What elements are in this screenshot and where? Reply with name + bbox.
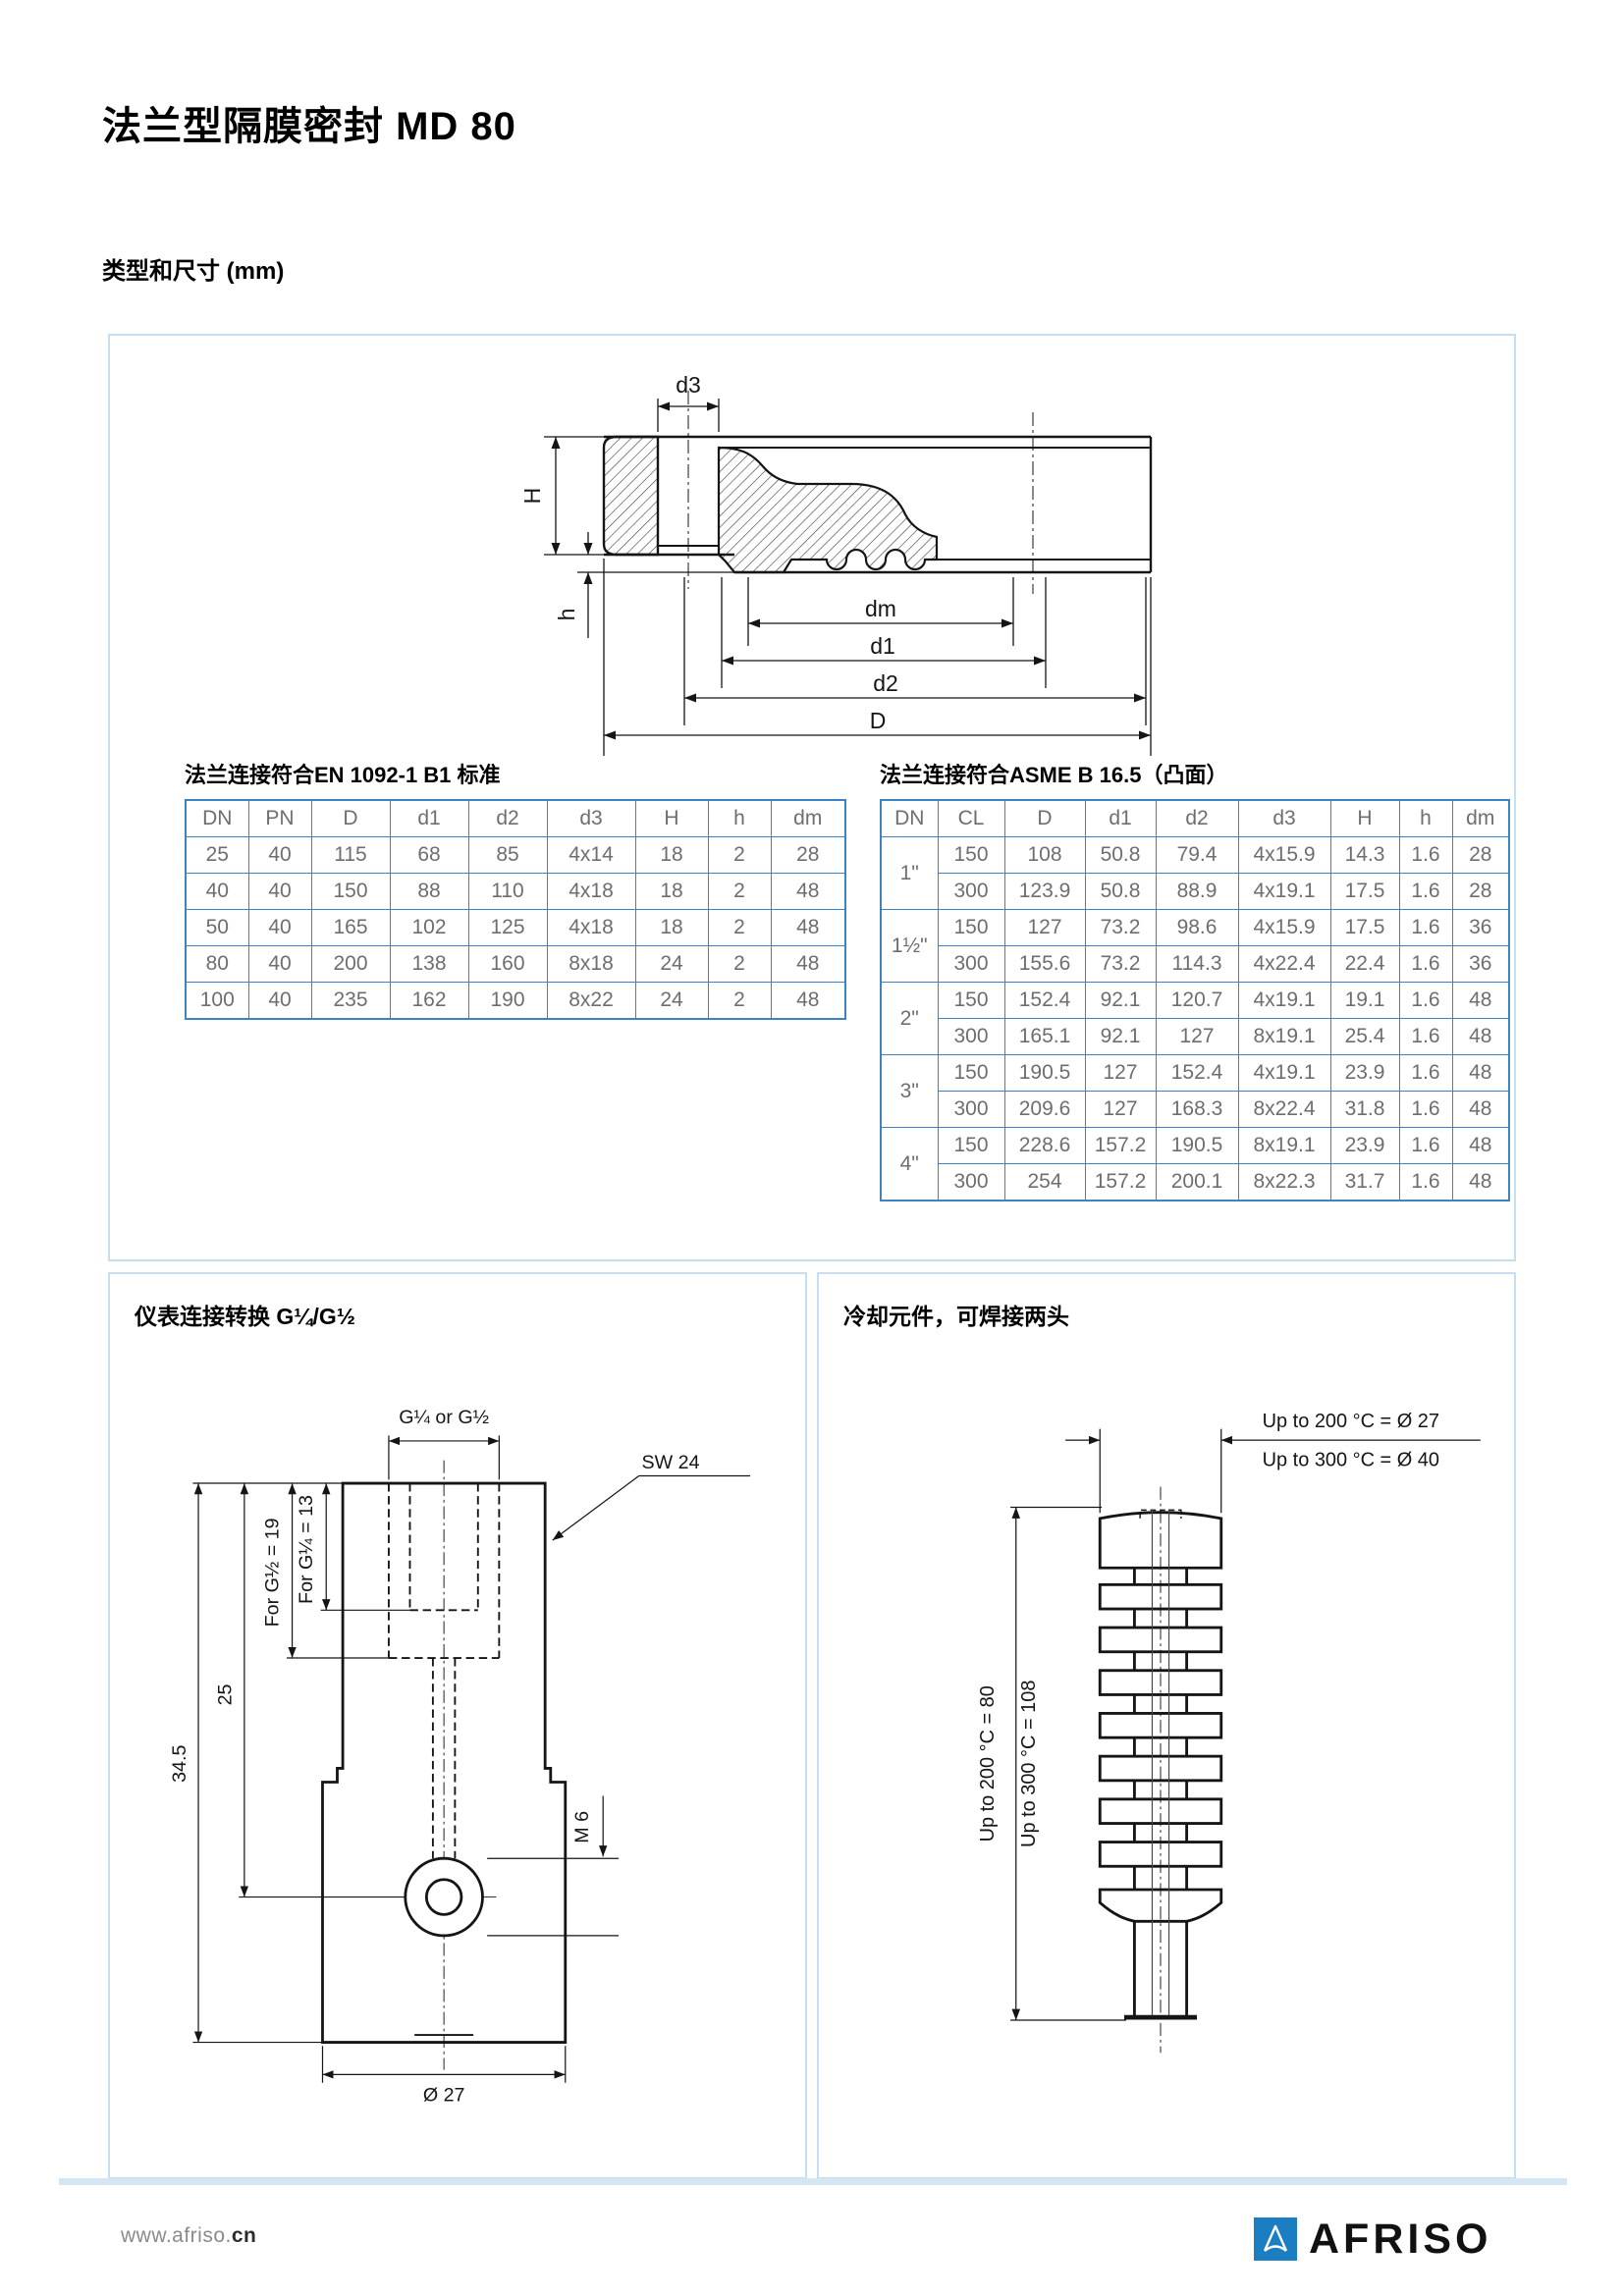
dim-label-d3: d3 bbox=[676, 372, 701, 398]
dim-label-to-hole: 25 bbox=[215, 1683, 237, 1705]
table-row: 300155.673.2114.34x22.422.41.636 bbox=[881, 946, 1509, 983]
dim-label-diameter: Ø 27 bbox=[423, 2085, 465, 2107]
table-row: 1" 15010850.879.44x15.914.31.628 bbox=[881, 837, 1509, 874]
flange-ring-section bbox=[604, 437, 658, 555]
adapter-panel-title: 仪表连接转换 G¼/G½ bbox=[135, 1298, 355, 1331]
dim-label-g14-depth: For G¼ = 13 bbox=[296, 1495, 317, 1604]
dim-label-total-height: 34.5 bbox=[169, 1745, 190, 1783]
dim-label-thread: G¼ or G½ bbox=[399, 1407, 489, 1428]
dim-label-len-200: Up to 200 °C = 80 bbox=[977, 1685, 999, 1842]
table-row: 300209.6127168.38x22.431.81.648 bbox=[881, 1092, 1509, 1128]
asme-table-title: 法兰连接符合ASME B 16.5（凸面） bbox=[880, 758, 1228, 789]
cooling-panel: 冷却元件，可焊接两头 bbox=[817, 1272, 1516, 2179]
side-hole-inner bbox=[426, 1880, 461, 1915]
table-row: 300254157.2200.18x22.331.71.648 bbox=[881, 1164, 1509, 1201]
cooling-element-drawing: Up to 200 °C = Ø 27 Up to 300 °C = Ø 40 … bbox=[839, 1367, 1483, 2113]
dim-label-H: H bbox=[519, 488, 545, 505]
table-row: 1½" 15012773.298.64x15.917.51.636 bbox=[881, 910, 1509, 946]
section-title-dimensions: 类型和尺寸 (mm) bbox=[102, 251, 284, 286]
flange-section-drawing: d3 H h dm d1 d2 D bbox=[395, 363, 1200, 756]
mountain-peak-icon bbox=[1254, 2217, 1297, 2261]
footer-accent-bar bbox=[59, 2178, 1567, 2185]
table-row: 80402001381608x1824248 bbox=[186, 946, 845, 983]
dimensions-panel: d3 H h dm d1 d2 D 法兰连接符合EN 1092-1 B1 标准 … bbox=[108, 334, 1516, 1261]
dim-label-wrench: SW 24 bbox=[642, 1452, 700, 1473]
table-header-row: DNCL Dd1 d2d3 Hh dm bbox=[881, 800, 1509, 837]
table-row: 300165.192.11278x19.125.41.648 bbox=[881, 1019, 1509, 1055]
table-row: 50401651021254x1818248 bbox=[186, 910, 845, 946]
adapter-panel: 仪表连接转换 G¼/G½ bbox=[108, 1272, 807, 2179]
asme-table: DNCL Dd1 d2d3 Hh dm 1" 15010850.879.44x1… bbox=[880, 799, 1510, 1201]
cooling-panel-title: 冷却元件，可焊接两头 bbox=[843, 1298, 1069, 1331]
en-table-title: 法兰连接符合EN 1092-1 B1 标准 bbox=[185, 758, 501, 789]
diaphragm-section bbox=[719, 448, 937, 572]
dim-label-dm: dm bbox=[865, 596, 896, 621]
footer-url-dark: cn bbox=[232, 2224, 257, 2247]
dim-label-dia-300: Up to 300 °C = Ø 40 bbox=[1263, 1450, 1439, 1471]
dim-label-g12-depth: For G½ = 19 bbox=[262, 1518, 284, 1627]
afriso-logo-text: AFRISO bbox=[1309, 2216, 1491, 2264]
table-row: 4" 150228.6157.2190.58x19.123.91.648 bbox=[881, 1128, 1509, 1164]
dim-label-m6: M 6 bbox=[571, 1811, 593, 1843]
table-row: 2" 150152.492.1120.74x19.119.11.648 bbox=[881, 983, 1509, 1019]
table-row: 254011568854x1418228 bbox=[186, 837, 845, 874]
afriso-logo: AFRISO bbox=[1254, 2217, 1519, 2263]
dim-label-D: D bbox=[870, 708, 887, 733]
dim-label-h: h bbox=[554, 609, 579, 621]
footer-url-gray: www.afriso. bbox=[121, 2224, 232, 2247]
table-header-row: DNPN Dd1 d2d3 Hh dm bbox=[186, 800, 845, 837]
table-row: 100402351621908x2224248 bbox=[186, 983, 845, 1020]
dim-label-len-300: Up to 300 °C = 108 bbox=[1018, 1681, 1040, 1847]
dim-label-d2: d2 bbox=[873, 670, 898, 696]
dim-label-dia-200: Up to 200 °C = Ø 27 bbox=[1263, 1411, 1439, 1432]
table-row: 300123.950.888.94x19.117.51.628 bbox=[881, 874, 1509, 910]
datasheet-page: 法兰型隔膜密封 MD 80 类型和尺寸 (mm) bbox=[0, 0, 1624, 2296]
table-row: 3" 150190.5127152.44x19.123.91.648 bbox=[881, 1055, 1509, 1092]
en-table: DNPN Dd1 d2d3 Hh dm 254011568854x1418228… bbox=[185, 799, 846, 1020]
page-title: 法兰型隔膜密封 MD 80 bbox=[102, 94, 516, 151]
dim-label-d1: d1 bbox=[870, 633, 895, 659]
table-row: 4040150881104x1818248 bbox=[186, 874, 845, 910]
footer-url: www.afriso.cn bbox=[121, 2224, 256, 2248]
adapter-drawing: G¼ or G½ SW 24 M 6 For G¼ = 13 For G½ = … bbox=[154, 1382, 752, 2109]
afriso-logo-icon bbox=[1254, 2217, 1297, 2261]
